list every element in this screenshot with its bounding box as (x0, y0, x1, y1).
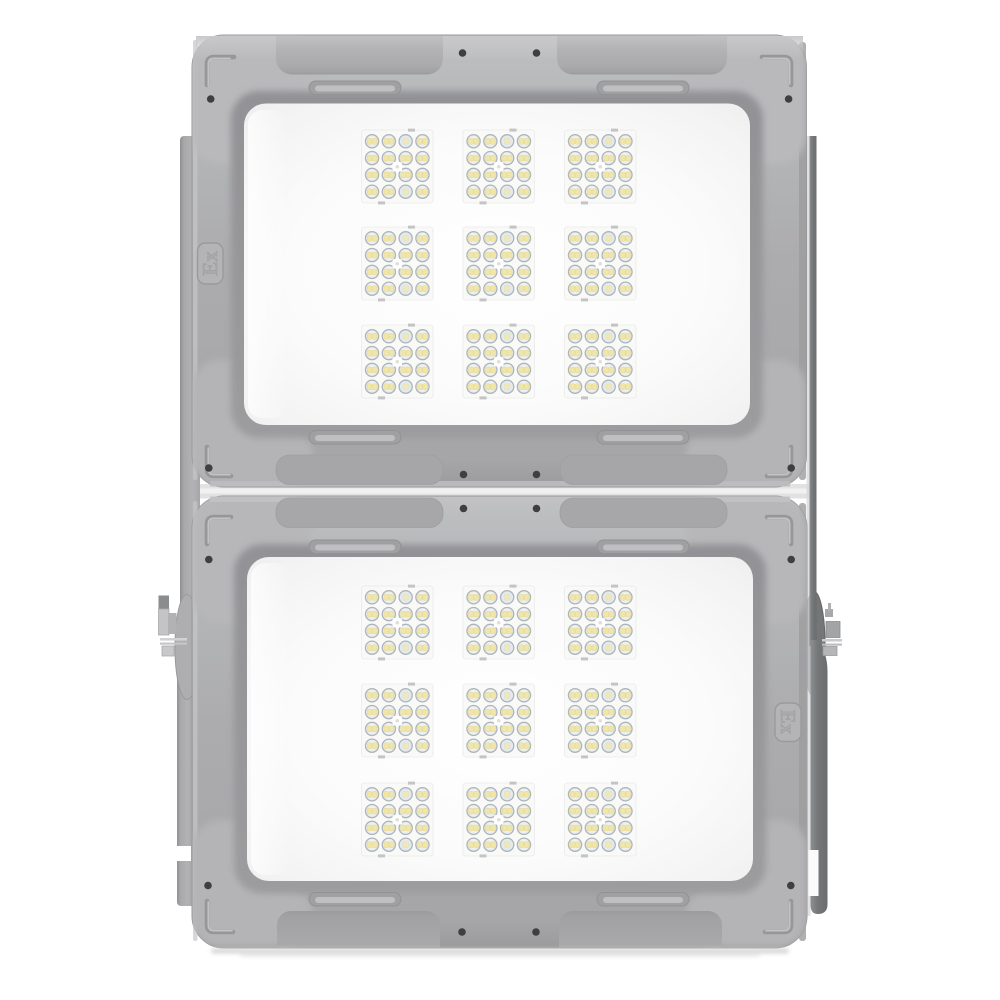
svg-text:Ex: Ex (776, 710, 800, 735)
svg-text:Ex: Ex (198, 251, 222, 276)
